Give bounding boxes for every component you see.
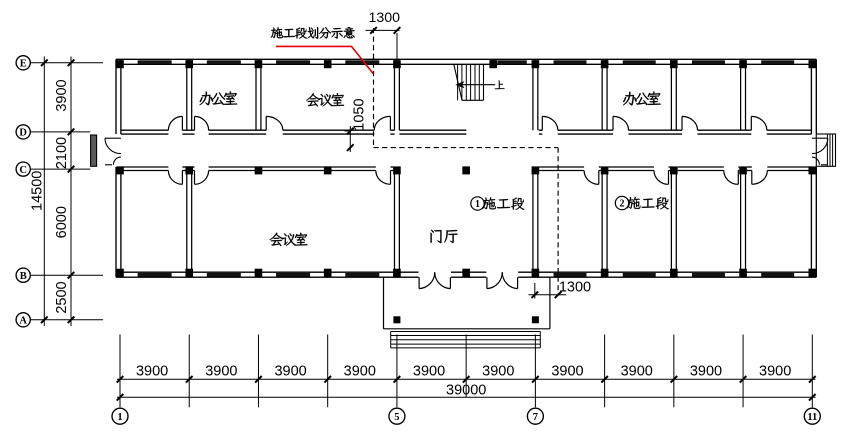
svg-text:A: A <box>19 316 27 327</box>
svg-text:3900: 3900 <box>413 363 445 379</box>
svg-text:1: 1 <box>475 199 480 210</box>
svg-text:B: B <box>20 271 27 282</box>
svg-text:1300: 1300 <box>369 10 401 26</box>
svg-text:3900: 3900 <box>482 363 514 379</box>
svg-text:3900: 3900 <box>690 363 722 379</box>
svg-text:2: 2 <box>620 199 625 210</box>
svg-text:3900: 3900 <box>205 363 237 379</box>
svg-text:1050: 1050 <box>352 98 368 130</box>
svg-text:3900: 3900 <box>136 363 168 379</box>
svg-text:7: 7 <box>533 412 538 423</box>
svg-text:14500: 14500 <box>30 171 46 211</box>
svg-text:D: D <box>19 128 27 139</box>
svg-text:11: 11 <box>807 412 817 423</box>
svg-text:39000: 39000 <box>446 382 486 398</box>
svg-text:3900: 3900 <box>344 363 376 379</box>
svg-text:6000: 6000 <box>54 206 70 238</box>
svg-text:3900: 3900 <box>551 363 583 379</box>
svg-text:1: 1 <box>117 412 122 423</box>
svg-text:2100: 2100 <box>54 137 70 169</box>
svg-text:1300: 1300 <box>559 280 591 296</box>
svg-text:3900: 3900 <box>54 79 70 111</box>
svg-text:5: 5 <box>394 412 399 423</box>
svg-text:C: C <box>19 165 27 176</box>
svg-text:3900: 3900 <box>274 363 306 379</box>
svg-text:3900: 3900 <box>621 363 653 379</box>
svg-text:2500: 2500 <box>54 281 70 313</box>
svg-text:3900: 3900 <box>759 363 791 379</box>
svg-text:E: E <box>20 59 27 70</box>
